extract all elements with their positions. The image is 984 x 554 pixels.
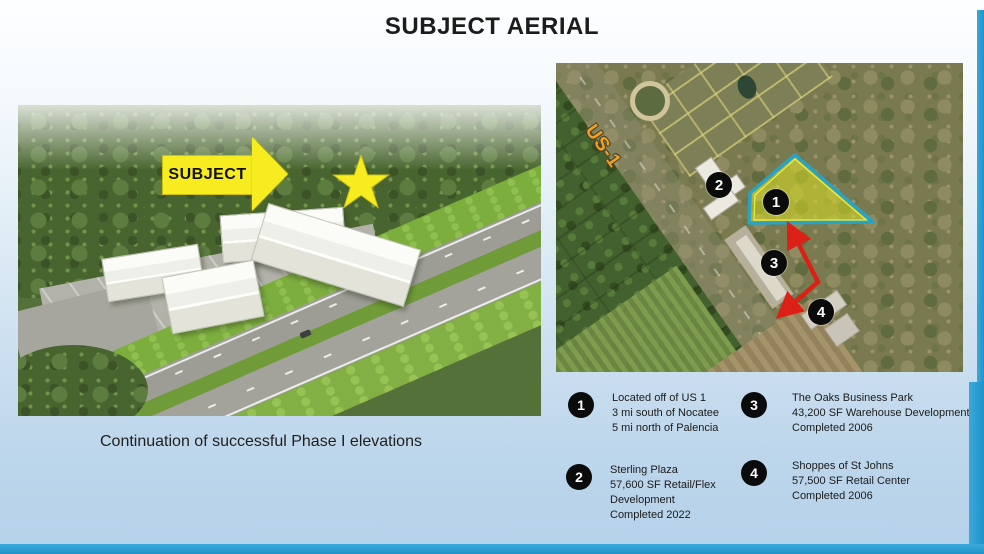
subject-parcel (749, 155, 873, 223)
legend-item-4: 4 Shoppes of St Johns 57,500 SF Retail C… (741, 459, 910, 504)
legend-text: Located off of US 1 3 mi south of Nocate… (612, 391, 719, 436)
page-title: SUBJECT AERIAL (0, 13, 984, 41)
site-aerial-photo: SUBJECT (18, 105, 541, 416)
legend-text-line: 5 mi north of Palencia (612, 421, 719, 436)
legend-text-line: 57,500 SF Retail Center (792, 474, 910, 489)
legend-text-line: Completed 2022 (610, 508, 716, 523)
map-marker-1: 1 (763, 189, 789, 215)
legend-text-line: 57,600 SF Retail/Flex (610, 478, 716, 493)
legend-text-line: Located off of US 1 (612, 391, 719, 406)
route-arrow (786, 233, 818, 310)
bottom-accent-bar (0, 544, 984, 554)
map-marker-4: 4 (808, 299, 834, 325)
subject-arrow: SUBJECT (162, 137, 322, 207)
legend-number-badge: 3 (741, 392, 767, 418)
parcel-and-route-overlay (556, 63, 963, 372)
right-accent-bar (969, 382, 984, 554)
legend-number-badge: 2 (566, 464, 592, 490)
legend-item-1: 1 Located off of US 1 3 mi south of Noca… (568, 391, 719, 436)
photo-caption: Continuation of successful Phase I eleva… (100, 433, 422, 451)
legend-number-badge: 4 (741, 460, 767, 486)
legend-text-line: 3 mi south of Nocatee (612, 406, 719, 421)
subject-star-icon (331, 155, 391, 211)
legend-text: Shoppes of St Johns 57,500 SF Retail Cen… (792, 459, 910, 504)
legend-text-line: Completed 2006 (792, 421, 970, 436)
legend-text-line: The Oaks Business Park (792, 391, 970, 406)
legend-text-line: Development (610, 493, 716, 508)
legend-number-badge: 1 (568, 392, 594, 418)
location-aerial-map: US-1 1 2 3 4 (556, 63, 963, 372)
legend-item-2: 2 Sterling Plaza 57,600 SF Retail/Flex D… (566, 463, 716, 523)
map-marker-3: 3 (761, 250, 787, 276)
legend-item-3: 3 The Oaks Business Park 43,200 SF Wareh… (741, 391, 970, 436)
legend-text-line: Completed 2006 (792, 489, 910, 504)
legend-text: Sterling Plaza 57,600 SF Retail/Flex Dev… (610, 463, 716, 523)
slide: SUBJECT AERIAL SUBJECT (0, 0, 984, 554)
legend-text-line: Shoppes of St Johns (792, 459, 910, 474)
legend-text: The Oaks Business Park 43,200 SF Warehou… (792, 391, 970, 436)
subject-label: SUBJECT (162, 155, 253, 195)
legend-text-line: 43,200 SF Warehouse Development (792, 406, 970, 421)
legend-text-line: Sterling Plaza (610, 463, 716, 478)
arrow-head-icon (252, 137, 288, 211)
map-marker-2: 2 (706, 172, 732, 198)
right-accent-bar (977, 10, 984, 382)
